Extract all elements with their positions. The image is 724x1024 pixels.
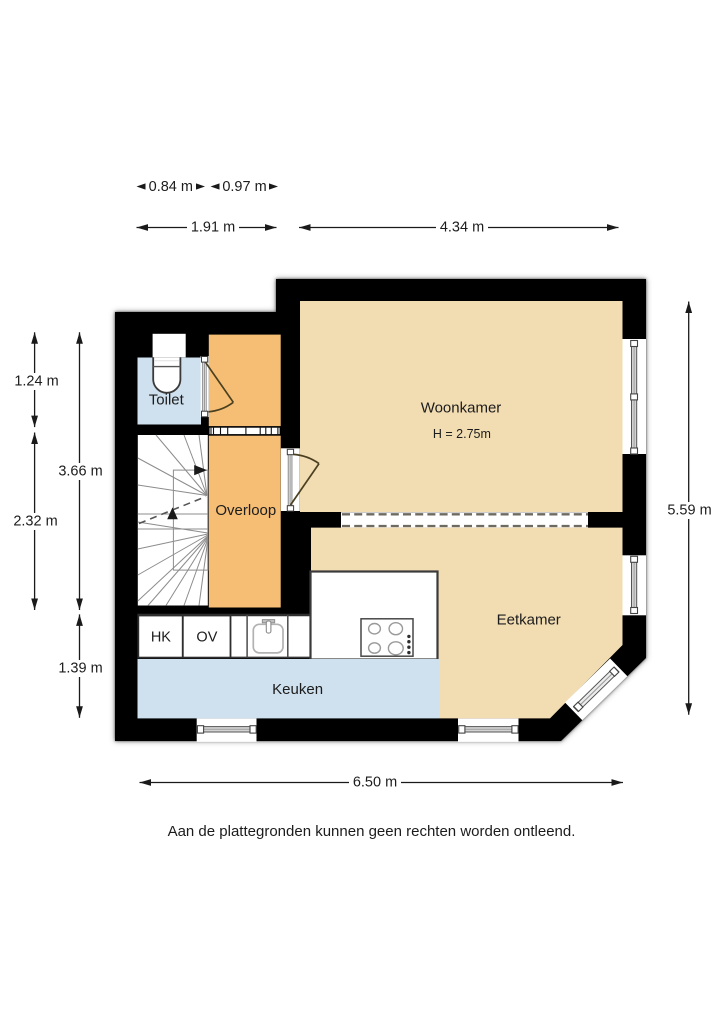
svg-text:1.24 m: 1.24 m <box>14 374 58 390</box>
svg-text:Toilet: Toilet <box>149 391 185 408</box>
svg-text:OV: OV <box>196 630 217 646</box>
svg-text:HK: HK <box>151 630 171 646</box>
svg-text:Aan de plattegronden kunnen ge: Aan de plattegronden kunnen geen rechten… <box>168 823 576 840</box>
svg-text:2.32 m: 2.32 m <box>13 514 57 530</box>
svg-text:5.59 m: 5.59 m <box>667 503 711 519</box>
svg-text:3.66 m: 3.66 m <box>58 464 102 480</box>
svg-text:0.97 m: 0.97 m <box>222 179 266 195</box>
svg-text:H = 2.75m: H = 2.75m <box>433 427 491 441</box>
svg-text:1.91 m: 1.91 m <box>191 220 235 236</box>
svg-text:Keuken: Keuken <box>272 681 323 698</box>
svg-text:Woonkamer: Woonkamer <box>421 399 502 416</box>
svg-text:6.50 m: 6.50 m <box>353 775 397 791</box>
svg-text:0.84 m: 0.84 m <box>149 179 193 195</box>
svg-text:Eetkamer: Eetkamer <box>497 611 561 628</box>
svg-text:1.39 m: 1.39 m <box>58 661 102 677</box>
svg-text:4.34 m: 4.34 m <box>440 220 484 236</box>
svg-text:Overloop: Overloop <box>215 502 276 519</box>
